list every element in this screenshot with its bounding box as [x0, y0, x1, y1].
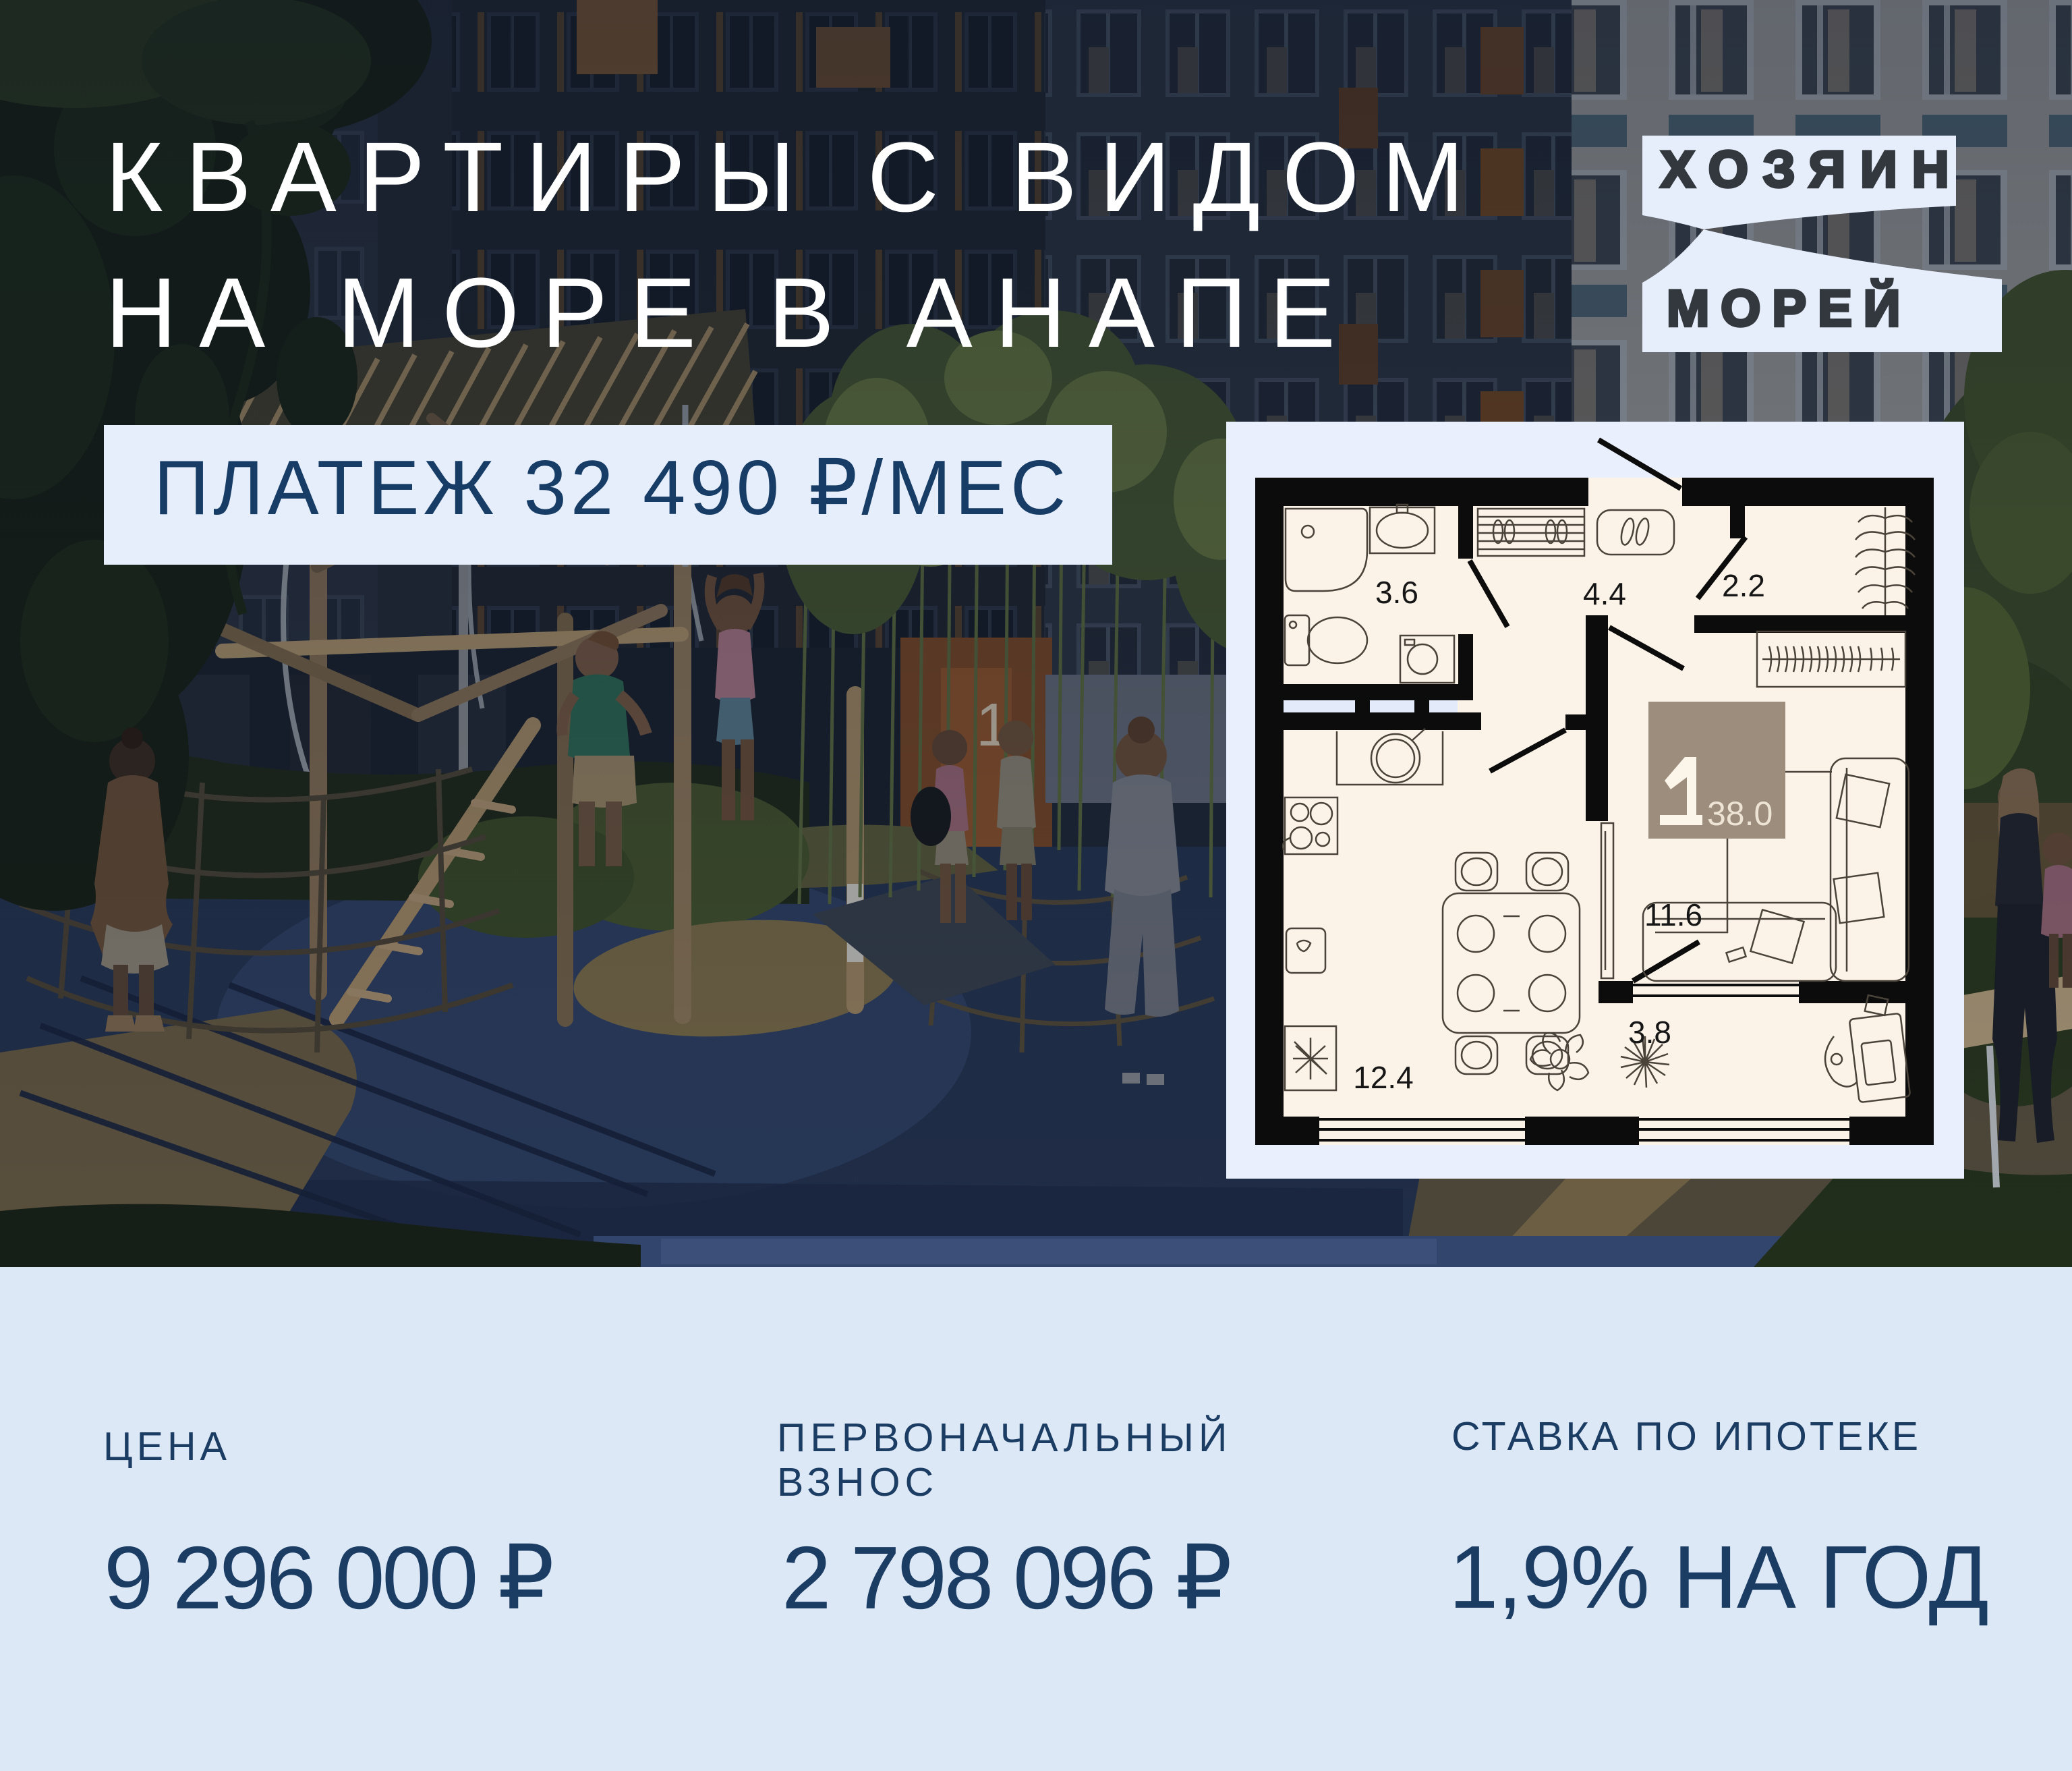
svg-text:11.6: 11.6	[1644, 897, 1702, 932]
svg-text:2.2: 2.2	[1722, 568, 1765, 603]
svg-text:38.0: 38.0	[1707, 795, 1773, 833]
svg-text:3.8: 3.8	[1628, 1015, 1671, 1050]
svg-text:4.4: 4.4	[1583, 576, 1626, 611]
svg-text:3.6: 3.6	[1375, 575, 1418, 610]
svg-text:12.4: 12.4	[1353, 1060, 1414, 1095]
svg-text:МОРЕЙ: МОРЕЙ	[1667, 279, 1911, 337]
svg-text:ХОЗЯИН: ХОЗЯИН	[1661, 141, 1964, 198]
